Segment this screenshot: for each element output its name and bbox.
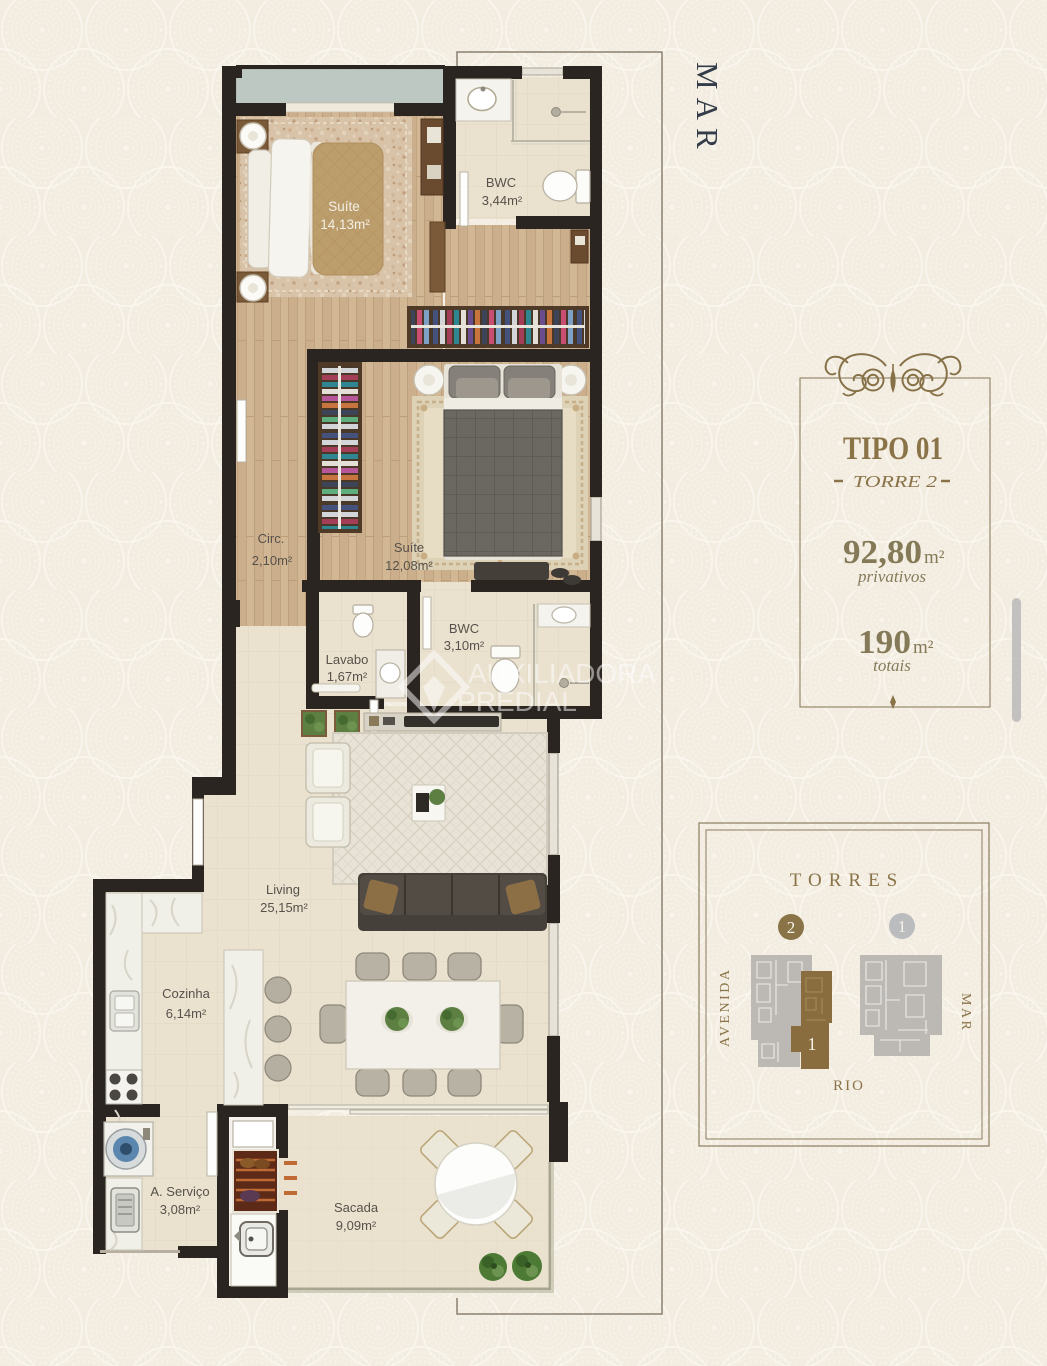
svg-text:TORRES: TORRES	[790, 870, 905, 891]
svg-text:PREDIAL: PREDIAL	[457, 686, 577, 717]
svg-text:1: 1	[808, 1034, 817, 1054]
svg-text:25,15m²: 25,15m²	[260, 900, 308, 915]
svg-text:MAR: MAR	[958, 993, 973, 1032]
svg-text:Lavabo: Lavabo	[326, 652, 369, 667]
svg-text:14,13m²: 14,13m²	[320, 217, 370, 232]
svg-text:Sacada: Sacada	[334, 1200, 379, 1215]
svg-text:1,67m²: 1,67m²	[327, 669, 368, 684]
svg-text:6,14m²: 6,14m²	[166, 1006, 207, 1021]
svg-text:BWC: BWC	[486, 175, 516, 190]
svg-text:1: 1	[898, 917, 907, 936]
svg-text:92,80: 92,80	[843, 534, 922, 571]
svg-text:Living: Living	[266, 882, 300, 897]
svg-text:Suíte: Suíte	[328, 199, 360, 214]
svg-text:TIPO 01: TIPO 01	[843, 431, 943, 467]
svg-text:BWC: BWC	[449, 621, 479, 636]
svg-text:3,10m²: 3,10m²	[444, 638, 485, 653]
svg-text:2,10m²: 2,10m²	[252, 553, 293, 568]
svg-text:2: 2	[787, 918, 796, 937]
svg-text:9,09m²: 9,09m²	[336, 1218, 377, 1233]
svg-text:12,08m²: 12,08m²	[385, 558, 433, 573]
svg-text:privativos: privativos	[857, 567, 926, 586]
svg-text:3,08m²: 3,08m²	[160, 1202, 201, 1217]
svg-text:totais: totais	[873, 656, 911, 675]
svg-text:Circ.: Circ.	[258, 531, 285, 546]
svg-text:Suíte: Suíte	[394, 540, 424, 555]
svg-text:AVENIDA: AVENIDA	[718, 968, 733, 1047]
svg-text:A. Serviço: A. Serviço	[150, 1184, 209, 1199]
svg-text:RIO: RIO	[833, 1078, 865, 1094]
svg-text:Cozinha: Cozinha	[162, 986, 210, 1001]
svg-text:MAR: MAR	[690, 62, 725, 157]
svg-text:3,44m²: 3,44m²	[482, 193, 523, 208]
svg-text:AUXILIADORA: AUXILIADORA	[468, 658, 656, 689]
svg-text:m²: m²	[924, 547, 945, 568]
svg-text:TORRE 2: TORRE 2	[853, 472, 938, 491]
svg-text:m²: m²	[913, 637, 934, 658]
